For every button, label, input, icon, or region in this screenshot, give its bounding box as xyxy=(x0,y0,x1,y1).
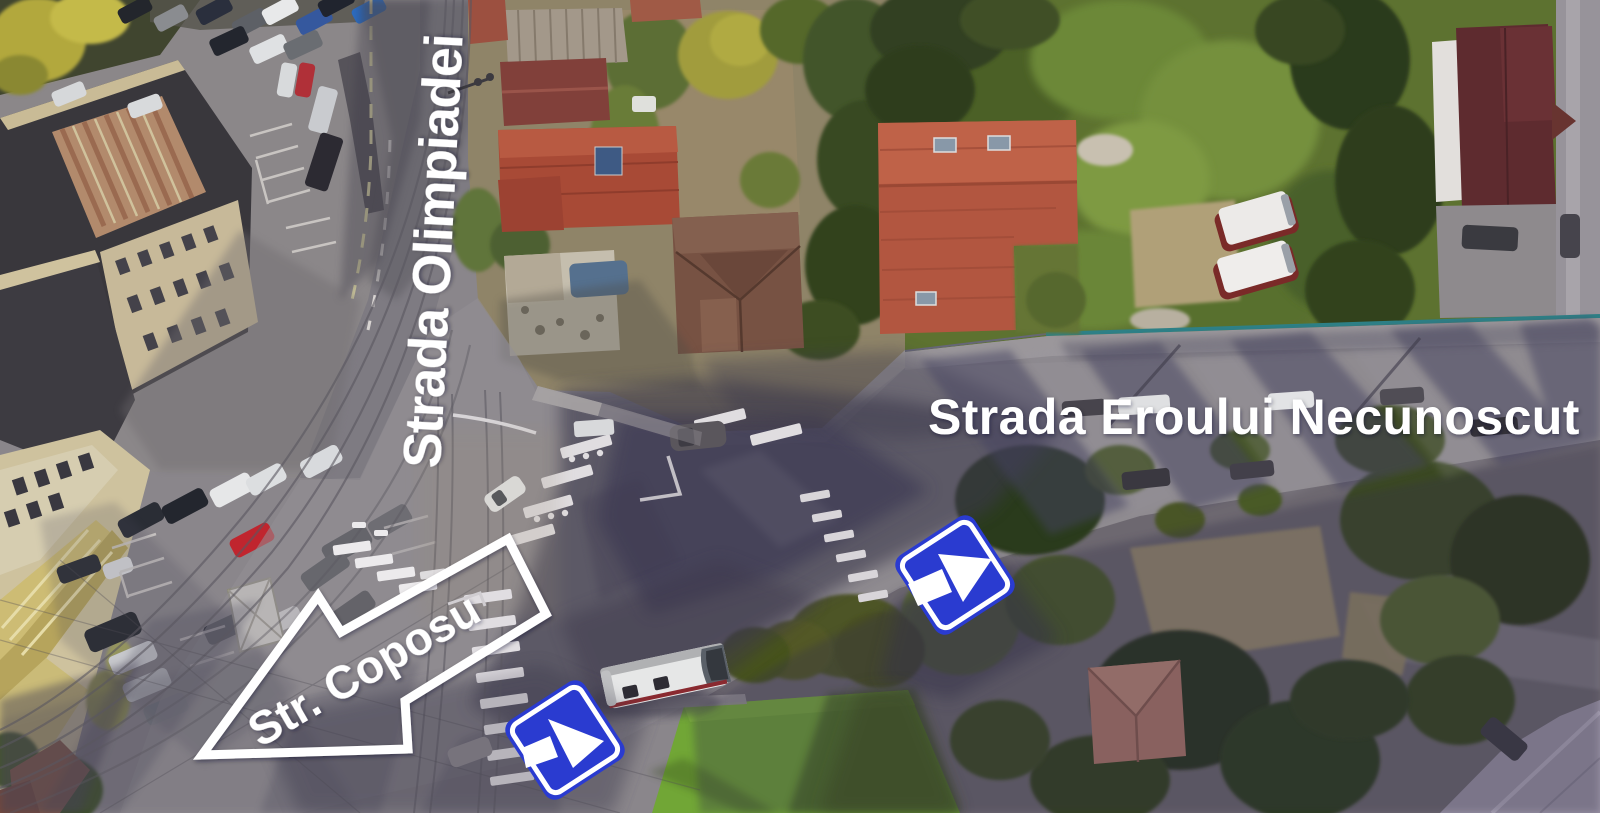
svg-text:Strada Eroului Necunoscut: Strada Eroului Necunoscut xyxy=(928,389,1580,445)
